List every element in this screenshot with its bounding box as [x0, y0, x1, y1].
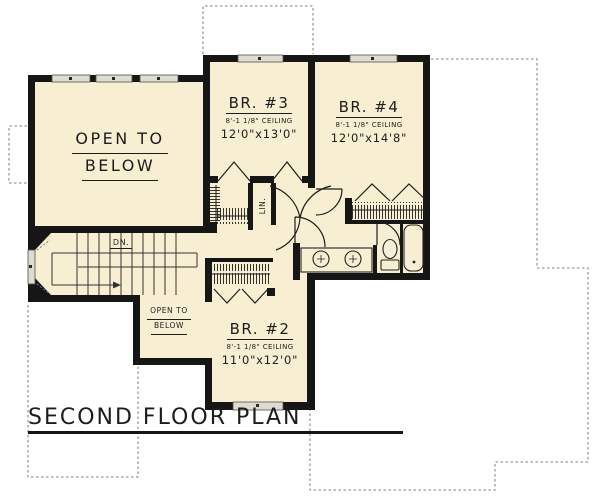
plan-title-underline: [28, 431, 403, 434]
tub-drain: [413, 261, 416, 264]
linen-closet-label: LIN.: [258, 198, 267, 214]
bay-outline-left: [9, 126, 27, 183]
roof-outline-top: [203, 6, 313, 54]
floor-plan-drawing: LIN.: [0, 0, 600, 504]
second-floor-plan: LIN. OPEN TO BELOW BR. #3 8'-1 1/8" CEIL…: [0, 0, 600, 504]
footprint-outline-left: [28, 305, 138, 477]
